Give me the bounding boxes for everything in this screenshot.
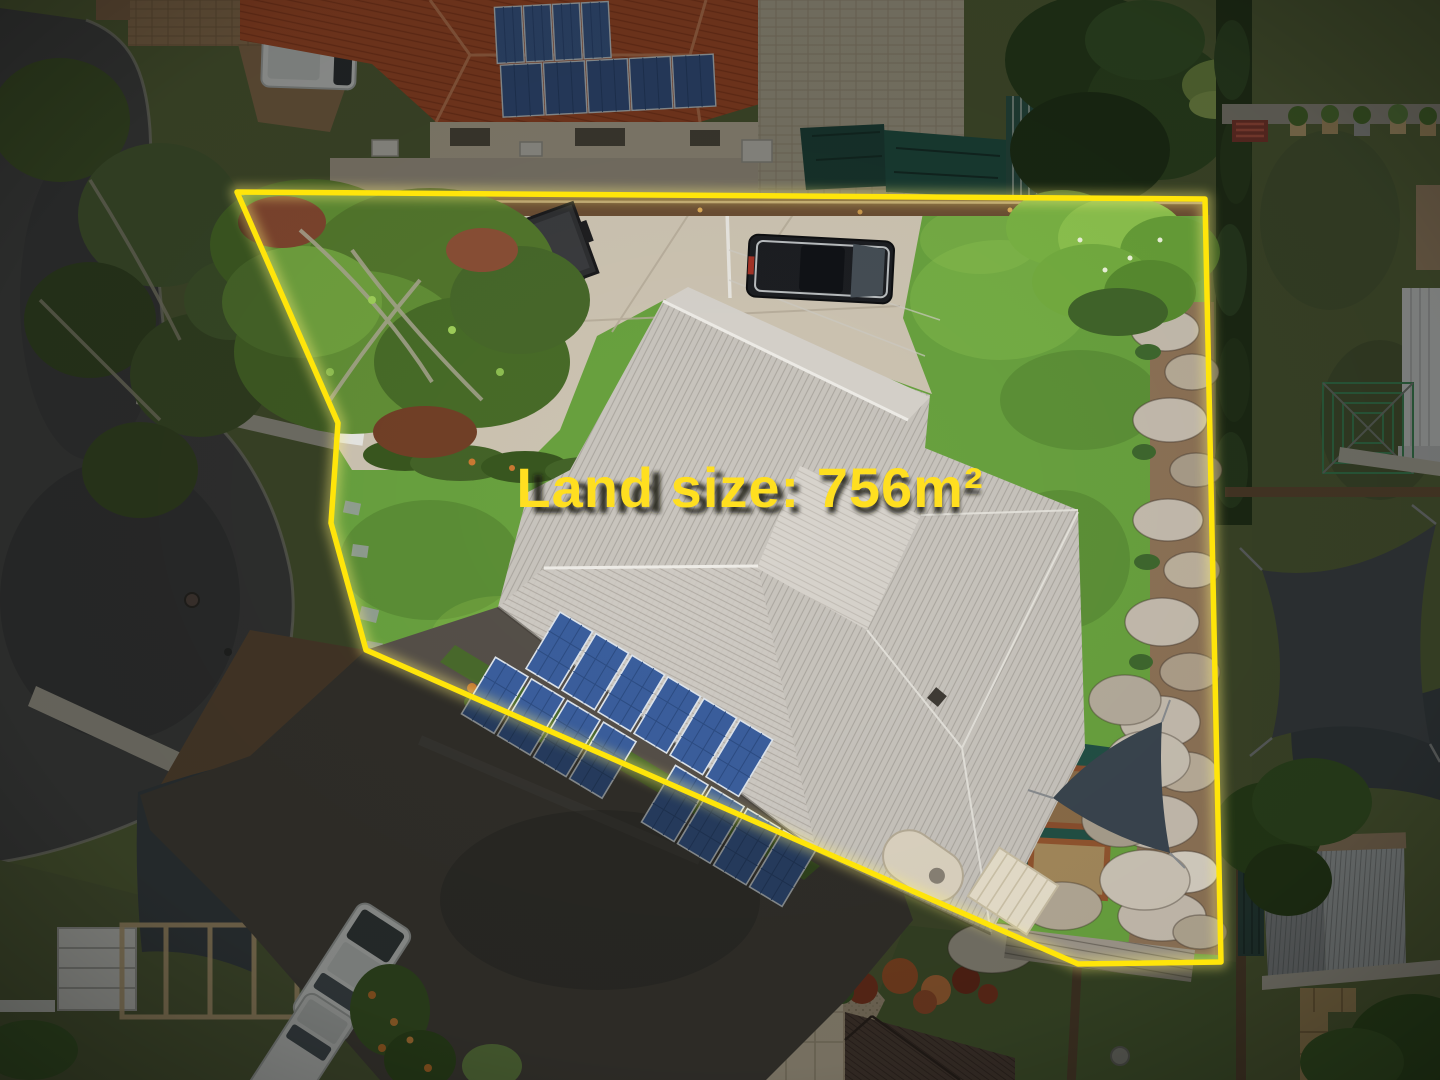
aerial-photo: Land size: 756m² Land size: 756m² bbox=[0, 0, 1440, 1080]
land-size-label: Land size: 756m² bbox=[516, 456, 983, 519]
aerial-scene: Land size: 756m² Land size: 756m² bbox=[0, 0, 1440, 1080]
land-size-caption: Land size: 756m² Land size: 756m² bbox=[516, 456, 983, 525]
